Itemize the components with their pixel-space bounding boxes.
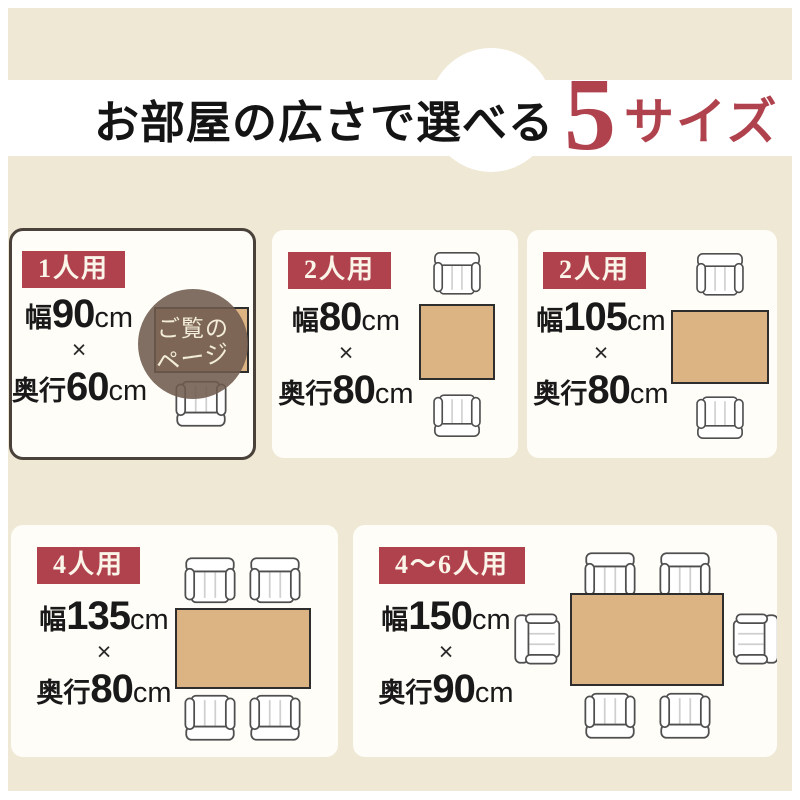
times-symbol: ×: [11, 638, 197, 667]
table-top-icon: [420, 305, 494, 379]
width-dimension: 幅135cm: [11, 595, 197, 637]
times-symbol: ×: [12, 336, 146, 365]
chair-icon: [660, 553, 709, 597]
chair-icon: [585, 694, 634, 738]
chair-icon: [697, 254, 743, 295]
chair-icon: [697, 397, 743, 438]
chair-icon: [434, 395, 480, 436]
size-card-90x60-current[interactable]: 1人用 幅90cm × 奥行60cm ご覧の ページ: [9, 228, 256, 460]
size-dimensions: 幅135cm × 奥行80cm: [11, 595, 197, 710]
size-card-80x80[interactable]: 2人用 幅80cm × 奥行80cm: [272, 230, 518, 458]
chair-icon: [250, 696, 299, 740]
chair-icon: [660, 694, 709, 738]
current-page-badge: ご覧の ページ: [138, 289, 248, 399]
chair-icon: [585, 553, 634, 597]
title-suffix: サイズ: [624, 82, 779, 154]
table-top-icon: [571, 594, 723, 685]
width-dimension: 幅90cm: [12, 293, 146, 335]
depth-dimension: 奥行80cm: [11, 668, 197, 710]
title-prefix: お部屋の広さで選べる: [94, 86, 554, 151]
depth-dimension: 奥行60cm: [12, 366, 146, 408]
page-title: お部屋の広さで選べる 5 サイズ: [94, 80, 779, 156]
table-top-icon: [672, 311, 768, 383]
chair-icon: [734, 614, 777, 663]
size-card-105x80[interactable]: 2人用 幅105cm × 奥行80cm: [527, 230, 777, 458]
depth-dimension: 奥行80cm: [272, 369, 420, 411]
size-dimensions: 幅80cm × 奥行80cm: [272, 296, 420, 411]
size-dimensions: 幅90cm × 奥行60cm: [12, 293, 146, 408]
size-dimensions: 幅105cm × 奥行80cm: [527, 296, 675, 411]
size-card-150x90[interactable]: 4〜6人用 幅150cm × 奥行90cm: [353, 525, 777, 757]
width-dimension: 幅80cm: [272, 296, 420, 338]
depth-dimension: 奥行80cm: [527, 369, 675, 411]
title-number: 5: [564, 63, 616, 167]
depth-dimension: 奥行90cm: [353, 668, 539, 710]
size-card-135x80[interactable]: 4人用 幅135cm × 奥行80cm: [11, 525, 338, 757]
times-symbol: ×: [272, 339, 420, 368]
times-symbol: ×: [527, 339, 675, 368]
width-dimension: 幅105cm: [527, 296, 675, 338]
times-symbol: ×: [353, 638, 539, 667]
chair-icon: [434, 253, 480, 294]
width-dimension: 幅150cm: [353, 595, 539, 637]
size-dimensions: 幅150cm × 奥行90cm: [353, 595, 539, 710]
chair-icon: [250, 558, 299, 602]
